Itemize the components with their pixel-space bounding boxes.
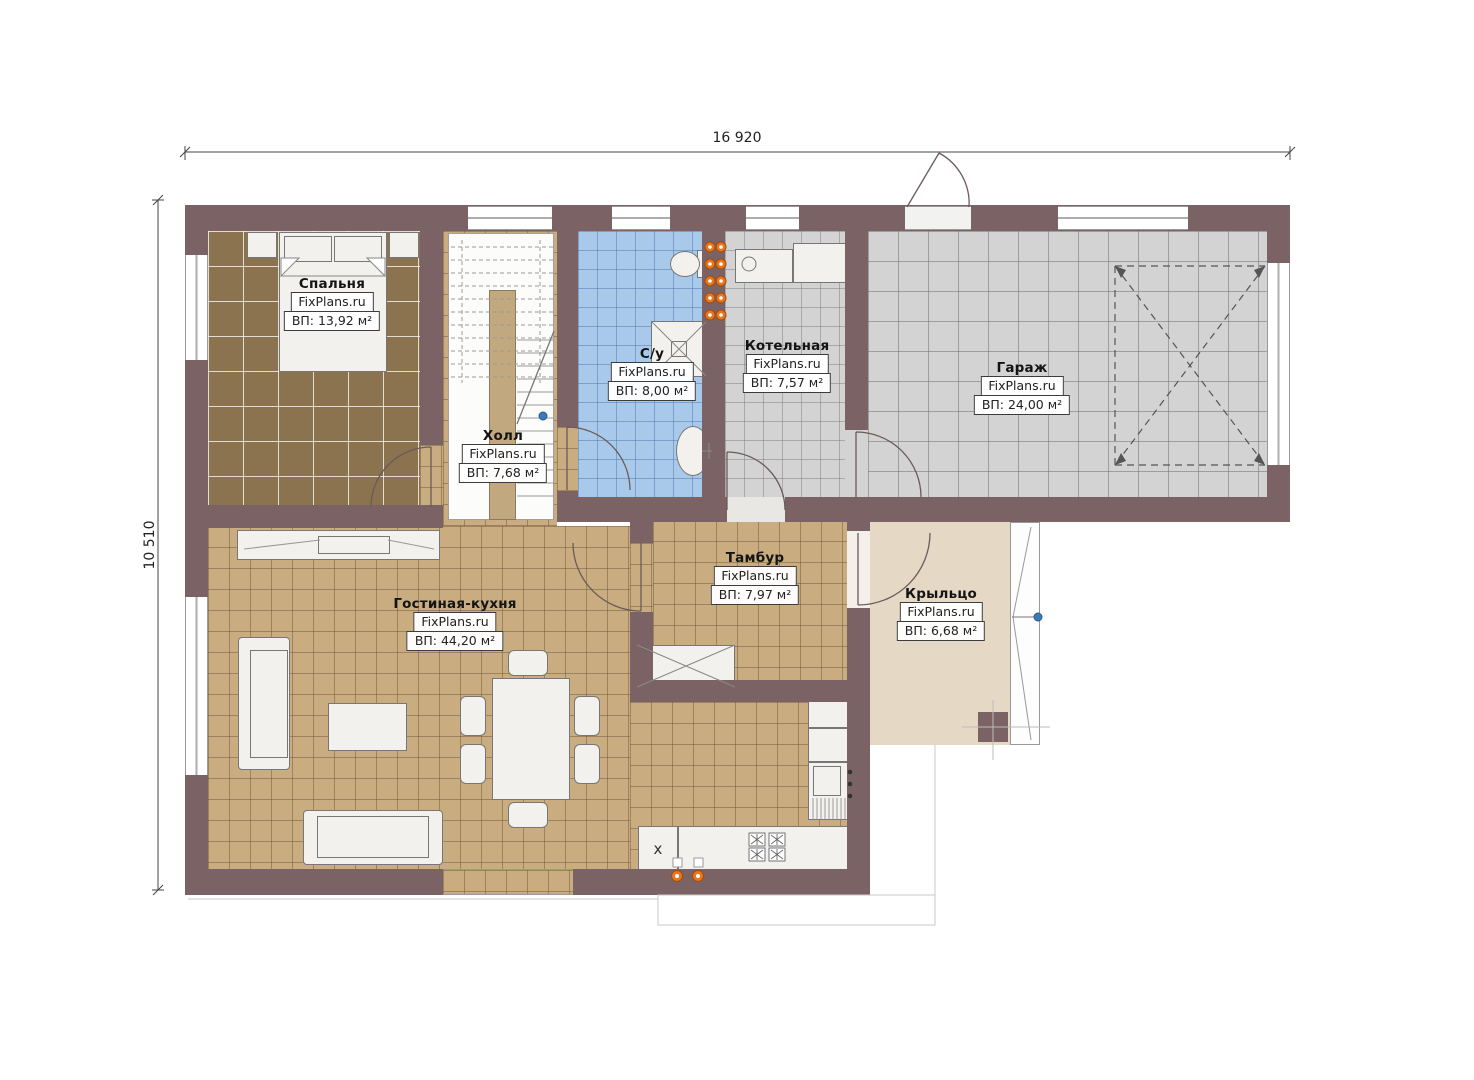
radiators-kitchen-wall <box>672 858 704 882</box>
bed-folds <box>281 258 385 276</box>
label-garage: Гараж FixPlans.ru ВП: 24,00 м² <box>974 360 1070 415</box>
room-name: Спальня <box>299 276 365 292</box>
watermark: FixPlans.ru <box>980 376 1063 396</box>
watermark: FixPlans.ru <box>290 292 373 312</box>
sink-drainer <box>813 798 845 820</box>
tv-lines <box>244 540 434 549</box>
porch-level-marker <box>1034 613 1042 621</box>
room-area: ВП: 44,20 м² <box>407 631 503 651</box>
floor-plan-canvas: x <box>0 0 1474 1080</box>
room-area: ВП: 24,00 м² <box>974 395 1070 415</box>
label-bathroom: С/у FixPlans.ru ВП: 8,00 м² <box>608 346 696 401</box>
room-name: Тамбур <box>726 550 784 566</box>
stove-burners <box>749 833 785 861</box>
room-area: ВП: 7,97 м² <box>711 585 799 605</box>
plan-annotations-svg <box>0 0 1474 1080</box>
room-name: С/у <box>640 346 664 362</box>
label-bedroom: Спальня FixPlans.ru ВП: 13,92 м² <box>284 276 380 331</box>
dimension-height: 10 510 <box>142 521 158 570</box>
room-area: ВП: 13,92 м² <box>284 311 380 331</box>
room-area: ВП: 8,00 м² <box>608 381 696 401</box>
room-name: Гостиная-кухня <box>393 596 516 612</box>
watermark: FixPlans.ru <box>413 612 496 632</box>
stairs-section-marker <box>539 412 547 420</box>
wardrobe-x <box>637 645 735 687</box>
watermark: FixPlans.ru <box>713 566 796 586</box>
dimension-lines <box>152 146 1295 895</box>
room-area: ВП: 7,57 м² <box>743 373 831 393</box>
label-living: Гостиная-кухня FixPlans.ru ВП: 44,20 м² <box>393 596 516 651</box>
room-area: ВП: 6,68 м² <box>897 621 985 641</box>
label-porch: Крыльцо FixPlans.ru ВП: 6,68 м² <box>897 586 985 641</box>
label-vestibule: Тамбур FixPlans.ru ВП: 7,97 м² <box>711 550 799 605</box>
foundation-outlines <box>188 745 935 925</box>
room-area: ВП: 7,68 м² <box>459 463 547 483</box>
watermark: FixPlans.ru <box>745 354 828 374</box>
label-hall: Холл FixPlans.ru ВП: 7,68 м² <box>459 428 547 483</box>
room-name: Гараж <box>997 360 1048 376</box>
room-name: Котельная <box>745 338 830 354</box>
label-boiler: Котельная FixPlans.ru ВП: 7,57 м² <box>743 338 831 393</box>
garage-x-marker <box>1115 266 1265 465</box>
watermark: FixPlans.ru <box>461 444 544 464</box>
room-name: Холл <box>483 428 523 444</box>
room-name: Крыльцо <box>905 586 977 602</box>
washing-machine-drum <box>742 257 756 271</box>
dimension-width: 16 920 <box>713 130 762 146</box>
radiators-bathroom-wall <box>705 242 726 320</box>
sink-dots <box>848 770 853 799</box>
porch-steps-marks <box>962 527 1050 760</box>
watermark: FixPlans.ru <box>899 602 982 622</box>
watermark: FixPlans.ru <box>610 362 693 382</box>
